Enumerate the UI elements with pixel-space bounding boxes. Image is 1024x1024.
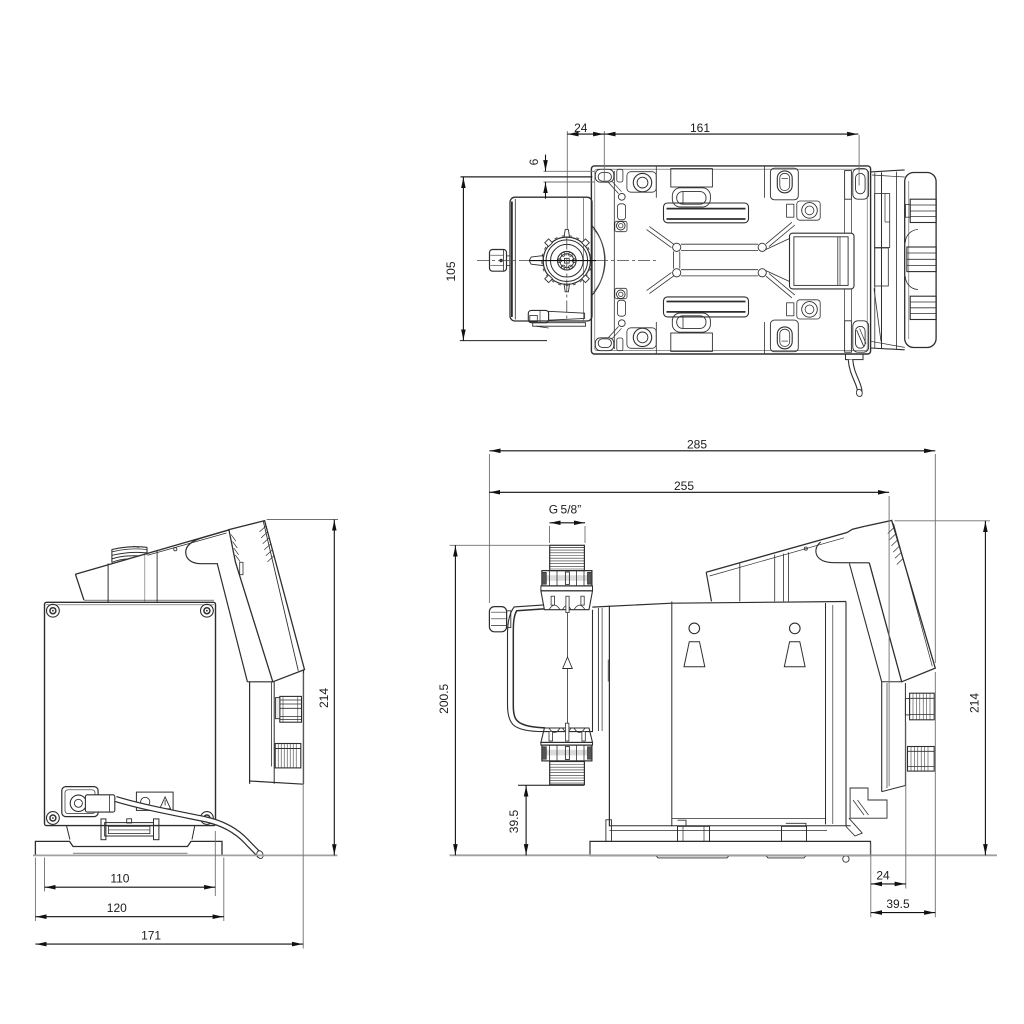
svg-text:39.5: 39.5 — [886, 897, 910, 911]
svg-text:24: 24 — [574, 121, 588, 135]
svg-text:214: 214 — [317, 688, 331, 708]
svg-text:24: 24 — [876, 868, 890, 882]
svg-text:G 5/8”: G 5/8” — [549, 503, 581, 517]
svg-text:214: 214 — [968, 693, 982, 713]
svg-text:120: 120 — [107, 901, 127, 915]
svg-text:6: 6 — [527, 158, 541, 165]
svg-text:110: 110 — [110, 872, 129, 886]
svg-text:39.5: 39.5 — [507, 809, 521, 833]
svg-text:200.5: 200.5 — [437, 683, 451, 713]
svg-text:105: 105 — [444, 261, 458, 281]
svg-text:171: 171 — [141, 929, 161, 943]
svg-text:161: 161 — [690, 121, 710, 135]
svg-text:285: 285 — [687, 438, 707, 452]
svg-text:255: 255 — [674, 479, 694, 493]
